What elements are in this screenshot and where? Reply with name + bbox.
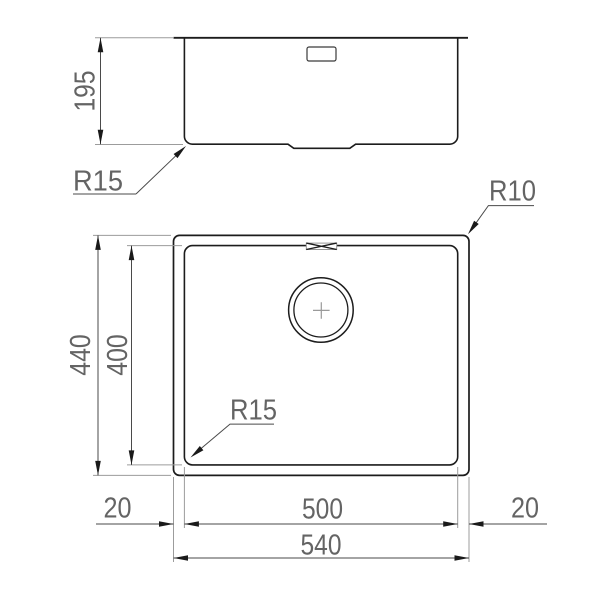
svg-text:20: 20 [104, 493, 132, 525]
svg-text:R15: R15 [73, 166, 123, 198]
svg-text:195: 195 [70, 71, 102, 112]
svg-text:400: 400 [102, 334, 134, 376]
svg-text:R15: R15 [230, 395, 277, 427]
svg-text:440: 440 [65, 334, 97, 376]
svg-text:20: 20 [511, 493, 539, 525]
svg-text:540: 540 [301, 530, 342, 562]
svg-text:500: 500 [302, 494, 343, 526]
svg-text:R10: R10 [489, 176, 536, 208]
